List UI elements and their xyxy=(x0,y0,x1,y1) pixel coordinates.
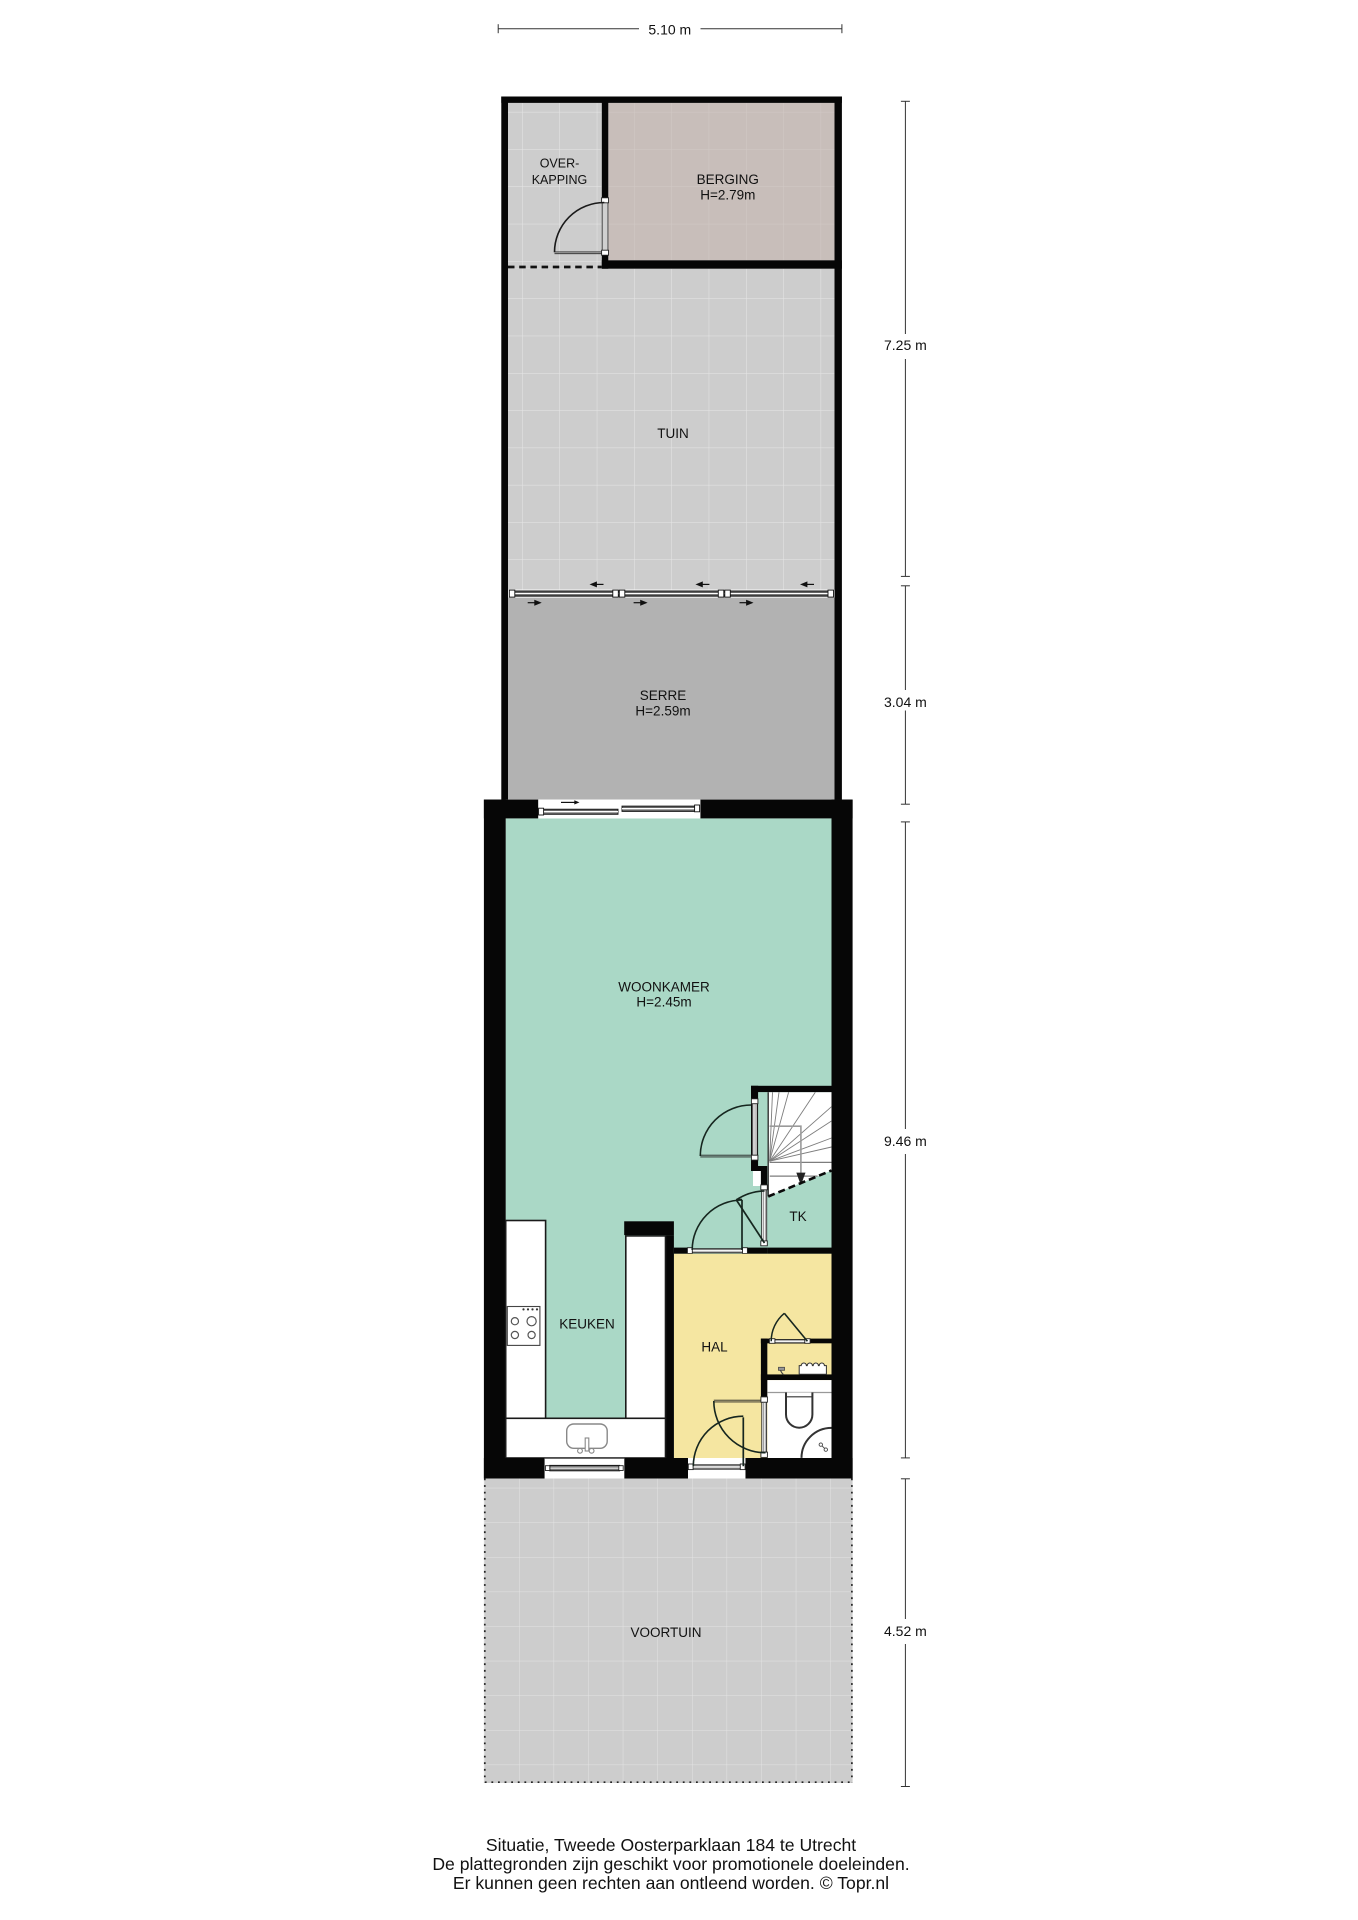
svg-text:KEUKEN: KEUKEN xyxy=(559,1317,615,1332)
svg-text:H=2.45m: H=2.45m xyxy=(636,995,691,1010)
svg-text:WOONKAMER: WOONKAMER xyxy=(618,980,710,995)
svg-text:3.04 m: 3.04 m xyxy=(884,694,927,710)
svg-text:De plattegronden zijn geschikt: De plattegronden zijn geschikt voor prom… xyxy=(432,1854,909,1874)
svg-text:5.10 m: 5.10 m xyxy=(648,21,691,37)
svg-text:4.52 m: 4.52 m xyxy=(884,1623,927,1639)
svg-text:BERGING: BERGING xyxy=(697,172,759,187)
svg-text:7.25 m: 7.25 m xyxy=(884,337,927,353)
svg-text:TUIN: TUIN xyxy=(657,426,689,441)
svg-text:H=2.79m: H=2.79m xyxy=(700,188,755,203)
svg-text:HAL: HAL xyxy=(701,1340,728,1355)
svg-text:OVER-: OVER- xyxy=(540,157,580,171)
svg-text:Situatie, Tweede Oosterparklaa: Situatie, Tweede Oosterparklaan 184 te U… xyxy=(486,1835,856,1855)
svg-text:TK: TK xyxy=(789,1209,806,1224)
svg-text:SERRE: SERRE xyxy=(640,688,687,703)
svg-text:H=2.59m: H=2.59m xyxy=(635,704,690,719)
svg-text:Er kunnen geen rechten aan ont: Er kunnen geen rechten aan ontleend word… xyxy=(453,1873,889,1893)
svg-text:9.46 m: 9.46 m xyxy=(884,1133,927,1149)
svg-text:KAPPING: KAPPING xyxy=(532,173,588,187)
svg-text:VOORTUIN: VOORTUIN xyxy=(630,1625,701,1640)
